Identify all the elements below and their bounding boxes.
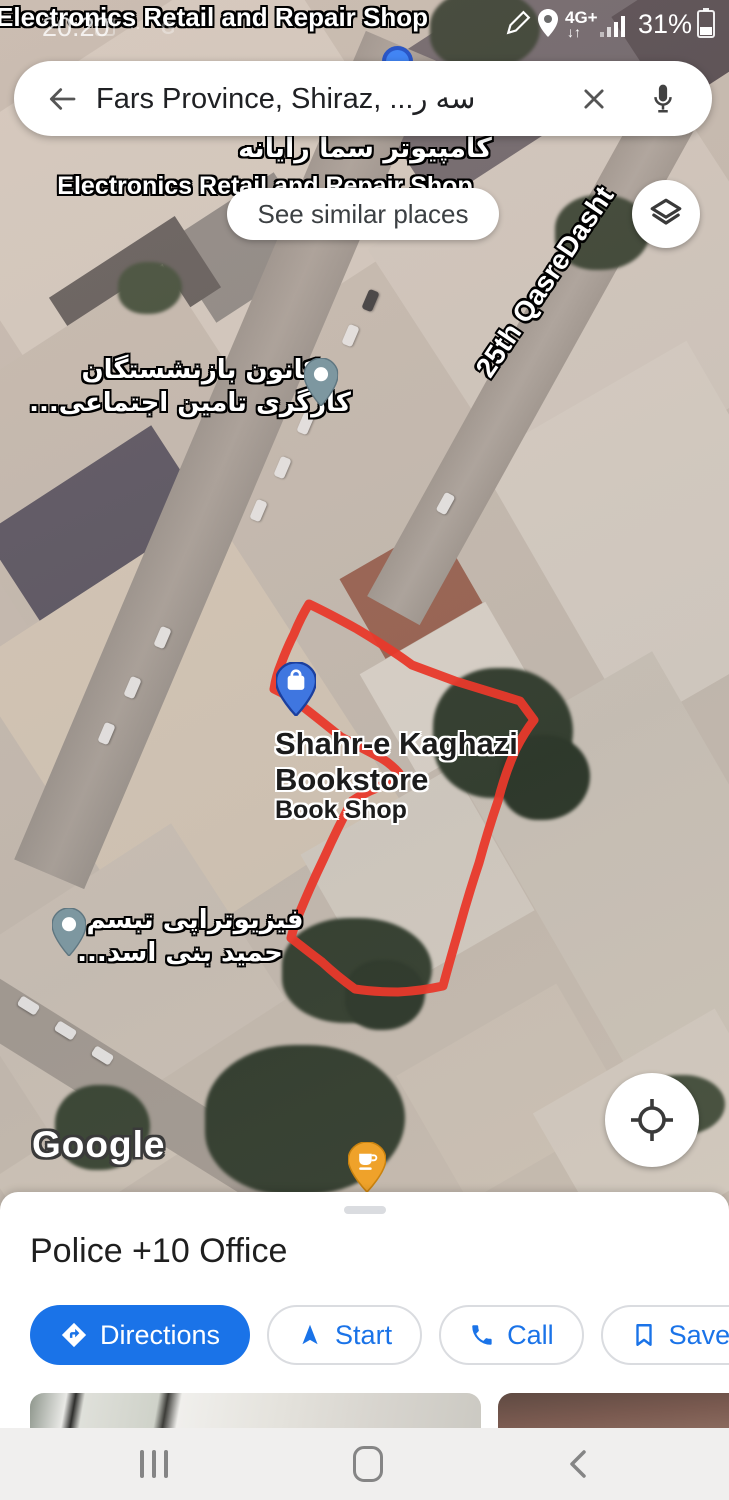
map-label-computer-store-fa: کامپیوتر سما رایانه [238, 133, 492, 164]
see-similar-label: See similar places [258, 199, 469, 230]
battery-icon [697, 8, 715, 38]
action-buttons-row: Directions Start Call Save [30, 1305, 729, 1365]
call-button[interactable]: Call [439, 1305, 584, 1365]
navigation-icon [297, 1322, 323, 1348]
edit-status-icon [505, 10, 531, 36]
recents-button[interactable] [140, 1450, 168, 1478]
status-bar: 20:20 ⋯ G 4G+ ↓↑ 31% [0, 0, 729, 48]
microphone-icon[interactable] [648, 82, 678, 116]
cafe-pin[interactable] [348, 1142, 386, 1192]
map-label-bookstore-line1: Shahr-e Kaghazi [275, 726, 518, 762]
notification-icons: ⋯ G [95, 18, 245, 40]
map-label-retiree-line2: کارگری تامین اجتماعی... [29, 388, 351, 418]
map-label-retiree-line1: کانون بازنشستگان [81, 355, 318, 385]
call-label: Call [507, 1320, 554, 1351]
place-pin-physiotherapy[interactable] [52, 908, 86, 956]
map-label-bookstore-type: Book Shop [275, 796, 407, 825]
see-similar-places-button[interactable]: See similar places [227, 188, 499, 240]
map-label-bookstore-line2: Bookstore [275, 762, 428, 798]
bookstore-pin[interactable] [276, 662, 316, 716]
sheet-drag-handle[interactable] [344, 1206, 386, 1214]
map-label-physio-line2: حمید بنی اسد... [77, 938, 283, 968]
bookmark-icon [631, 1322, 657, 1348]
signal-icon [600, 12, 630, 38]
start-label: Start [335, 1320, 392, 1351]
back-button[interactable] [567, 1448, 589, 1480]
place-pin-retiree-center[interactable] [304, 358, 338, 406]
start-button[interactable]: Start [267, 1305, 422, 1365]
gps-status-icon [536, 8, 560, 38]
layers-icon [648, 196, 684, 232]
google-maps-screen: Electronics Retail and Repair Shop کامپی… [0, 0, 729, 1500]
directions-label: Directions [100, 1320, 220, 1351]
save-label: Save [669, 1320, 729, 1351]
phone-icon [469, 1322, 495, 1348]
home-button[interactable] [353, 1446, 383, 1482]
battery-percent: 31% [638, 9, 692, 40]
my-location-button[interactable] [605, 1073, 699, 1167]
network-arrows: ↓↑ [567, 24, 581, 40]
clear-search-icon[interactable] [580, 85, 608, 113]
directions-icon [60, 1321, 88, 1349]
android-nav-bar [0, 1428, 729, 1500]
layers-button[interactable] [632, 180, 700, 248]
locate-icon [628, 1096, 676, 1144]
back-arrow-icon[interactable] [46, 83, 78, 115]
search-input[interactable]: Fars Province, Shiraz, ...سه ر [96, 81, 580, 116]
place-title: Police +10 Office [30, 1232, 287, 1271]
save-button[interactable]: Save [601, 1305, 729, 1365]
google-logo: Google [32, 1124, 165, 1166]
map-label-physio-line1: فیزیوتراپی تبسم [86, 905, 303, 935]
directions-button[interactable]: Directions [30, 1305, 250, 1365]
search-bar[interactable]: Fars Province, Shiraz, ...سه ر [14, 61, 712, 136]
